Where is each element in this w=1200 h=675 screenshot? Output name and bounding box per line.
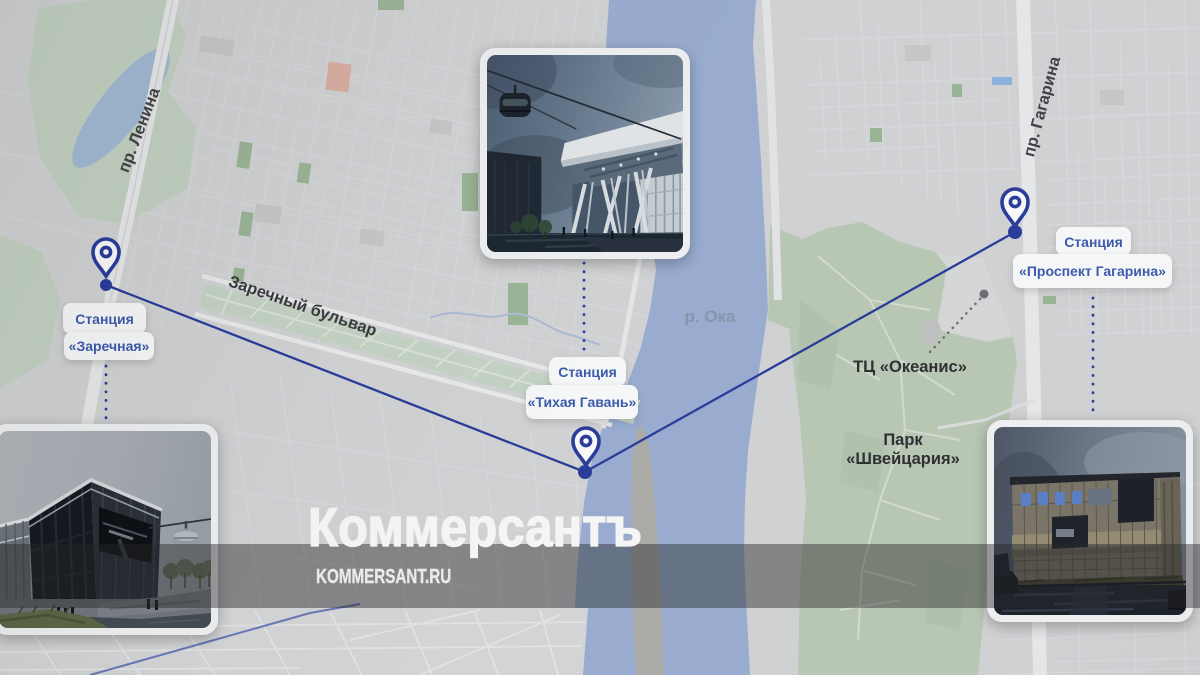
svg-text:ТЦ «Океанис»: ТЦ «Океанис» [853, 358, 967, 376]
svg-text:Парк: Парк [883, 431, 923, 449]
svg-text:р. Ока: р. Ока [684, 307, 736, 326]
svg-text:«Швейцария»: «Швейцария» [846, 450, 960, 468]
